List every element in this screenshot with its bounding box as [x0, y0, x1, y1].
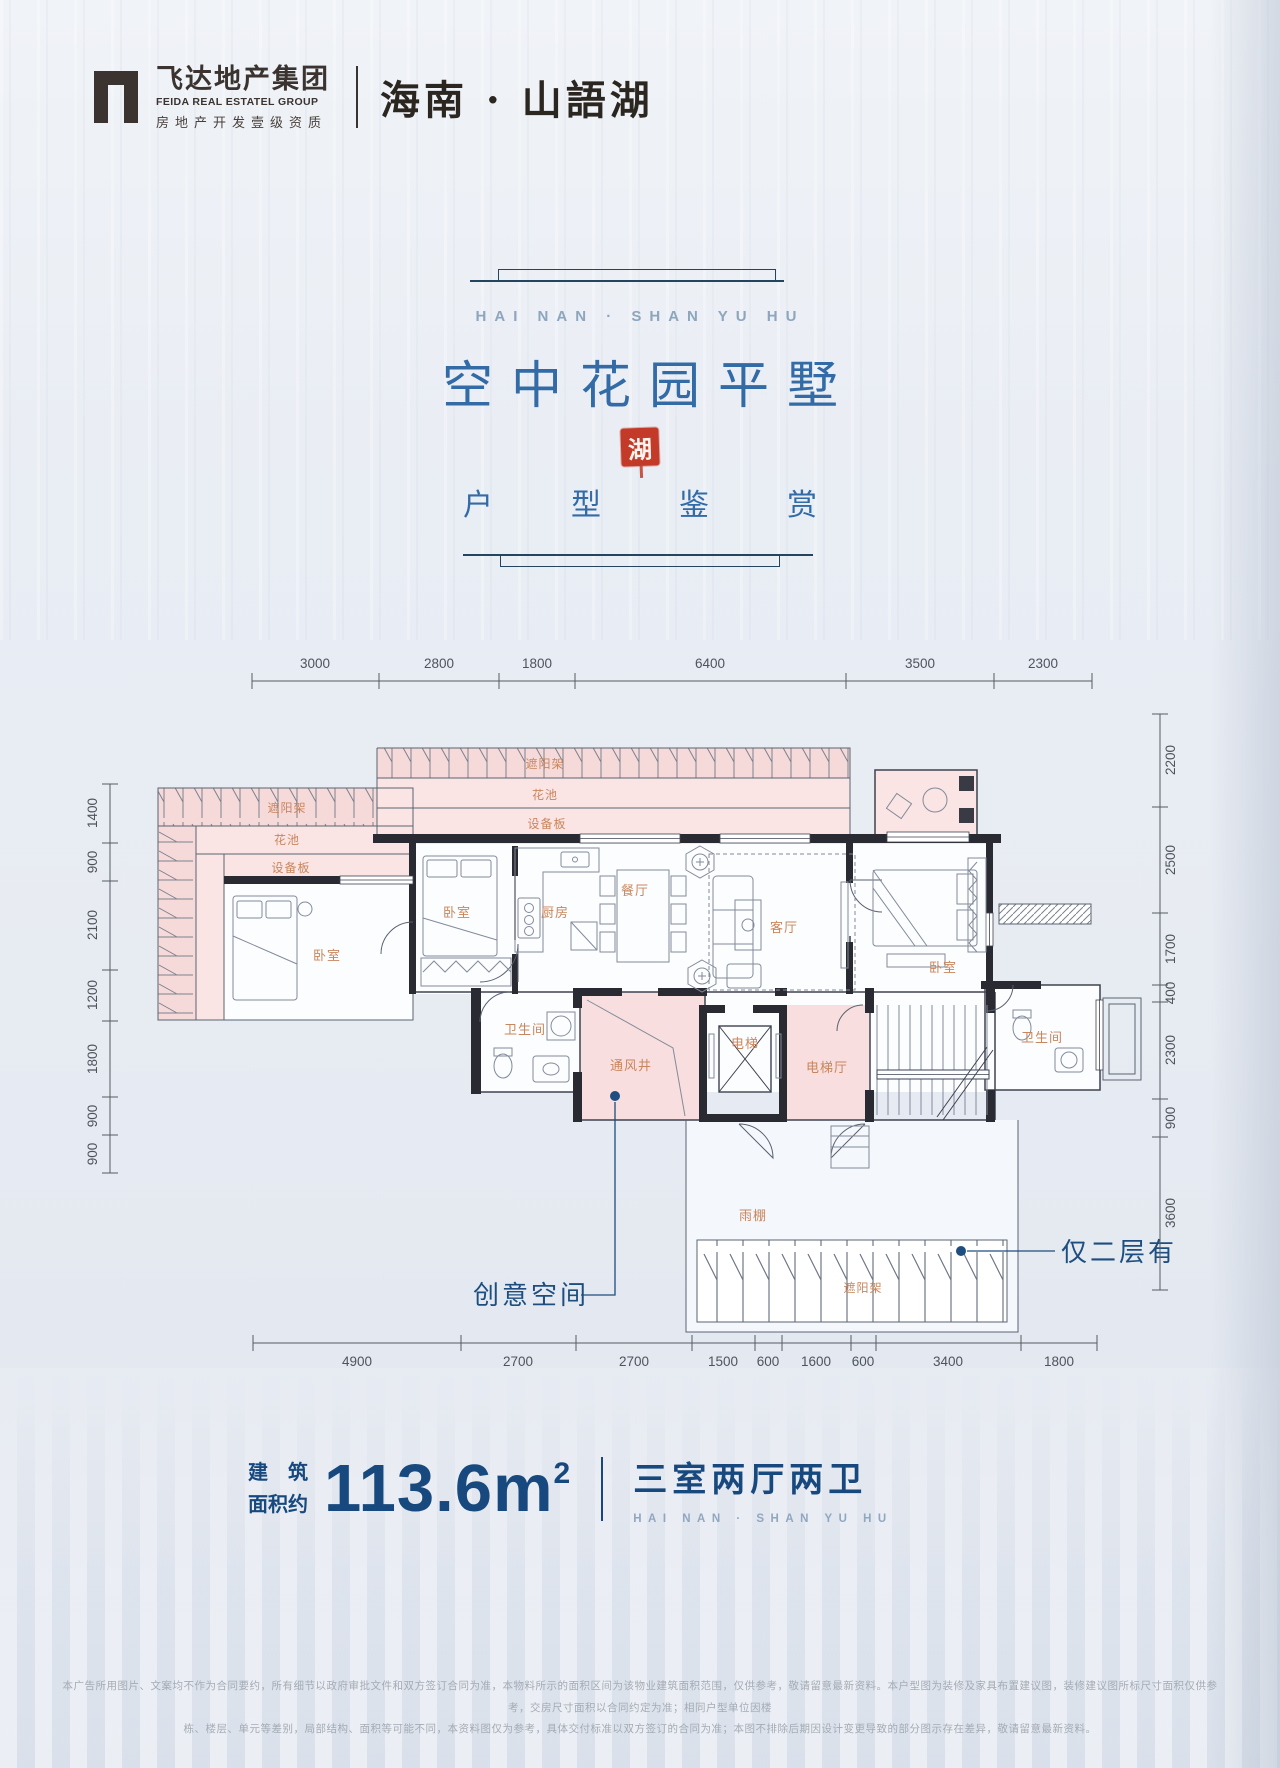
disclaimer-line1: 本广告所用图片、文案均不作为合同要约，所有细节以政府审批文件和双方签订合同为准，… [60, 1676, 1220, 1719]
poster-page: 飞达地产集团 FEIDA REAL ESTATEL GROUP 房地产开发壹级资… [0, 0, 1280, 1768]
dim-right-1: 2500 [1163, 845, 1178, 875]
dim-top-2: 1800 [522, 656, 552, 671]
dim-right-2: 1700 [1163, 934, 1178, 964]
project-name: 海南 · 山語湖 [380, 68, 654, 126]
dim-bottom-7: 3400 [933, 1354, 963, 1369]
room-label-equip-main: 设备板 [527, 817, 566, 831]
room-label-dining: 餐厅 [621, 883, 649, 898]
dim-left-3: 1200 [85, 980, 100, 1010]
dim-bottom-0: 4900 [342, 1354, 372, 1369]
subtitle: 户型鉴赏 [0, 480, 1280, 524]
dim-bottom-5: 1600 [801, 1354, 831, 1369]
layout-block: 三室两厅两卫 HAI NAN · SHAN YU HU [633, 1452, 893, 1525]
dim-bottom-3: 1500 [708, 1354, 738, 1369]
dim-bottom-6: 600 [852, 1354, 875, 1369]
dim-top-4: 3500 [905, 656, 935, 671]
dim-left-4: 1800 [85, 1044, 100, 1074]
floor-plan-svg: 遮阳架 花池 设备板 遮阳架 花池 设备板 卧室 卧室 厨房 餐厅 客厅 卧室 … [75, 620, 1205, 1420]
logo-text: 飞达地产集团 FEIDA REAL ESTATEL GROUP 房地产开发壹级资… [156, 66, 330, 129]
dim-left-2: 2100 [85, 910, 100, 940]
layout-text: 三室两厅两卫 [633, 1452, 893, 1501]
dim-left-6: 900 [85, 1143, 100, 1166]
header-divider [356, 66, 358, 128]
dim-right-3: 400 [1163, 982, 1178, 1005]
dim-bottom-1: 2700 [503, 1354, 533, 1369]
logo-qualification: 房地产开发壹级资质 [156, 116, 330, 129]
area-label-line1: 建 筑 [248, 1457, 308, 1489]
room-label-bedroom-right: 卧室 [929, 960, 957, 975]
dim-right-6: 3600 [1163, 1198, 1178, 1228]
dim-left-0: 1400 [85, 798, 100, 828]
decor-line-bottom [463, 554, 813, 568]
dim-right-0: 2200 [1163, 745, 1178, 775]
room-label-flower-main: 花池 [532, 787, 558, 802]
dim-bottom-2: 2700 [619, 1354, 649, 1369]
background-right-shade [1210, 0, 1280, 1768]
room-label-flower-garden: 花池 [274, 832, 300, 847]
footer-info: 建 筑 面积约 113.6m2 三室两厅两卫 HAI NAN · SHAN YU… [248, 1452, 893, 1525]
dim-bottom-4: 600 [757, 1354, 780, 1369]
dim-right-4: 2300 [1163, 1035, 1178, 1065]
room-label-elevator-hall: 电梯厅 [806, 1060, 848, 1075]
room-label-bedroom-garden: 卧室 [313, 948, 341, 963]
room-label-shade-garden: 遮阳架 [267, 800, 306, 815]
dim-left-1: 900 [85, 851, 100, 874]
header: 飞达地产集团 FEIDA REAL ESTATEL GROUP 房地产开发壹级资… [88, 66, 654, 129]
room-label-bedroom-mid: 卧室 [443, 905, 471, 920]
dim-bottom-8: 1800 [1044, 1354, 1074, 1369]
room-label-shade-main: 遮阳架 [525, 756, 564, 771]
room-label-vent: 通风井 [610, 1058, 652, 1073]
lake-seal: 湖 [620, 427, 659, 466]
feida-logo-icon [88, 67, 144, 127]
area-number: 113.6m [324, 1451, 554, 1526]
dim-top-0: 3000 [300, 656, 330, 671]
dim-top-3: 6400 [695, 656, 725, 671]
room-label-equip-garden: 设备板 [271, 861, 310, 875]
area-value: 113.6m2 [324, 1455, 571, 1522]
dim-top-1: 2800 [424, 656, 454, 671]
room-label-living: 客厅 [770, 920, 798, 935]
disclaimer: 本广告所用图片、文案均不作为合同要约，所有细节以政府审批文件和双方签订合同为准，… [60, 1676, 1220, 1741]
room-label-bath-left: 卫生间 [504, 1022, 546, 1037]
dim-right-5: 900 [1163, 1107, 1178, 1130]
dim-top-5: 2300 [1028, 656, 1058, 671]
title-en-line: HAI NAN · SHAN YU HU [0, 308, 1280, 325]
footer-divider [601, 1457, 603, 1521]
room-label-bath-right: 卫生间 [1021, 1030, 1063, 1045]
room-label-elevator: 电梯 [731, 1036, 759, 1051]
dim-left-5: 900 [85, 1105, 100, 1128]
logo-name-en: FEIDA REAL ESTATEL GROUP [156, 97, 330, 108]
page-title: 空中花园平墅 [0, 344, 1280, 418]
room-label-kitchen: 厨房 [541, 905, 569, 920]
room-label-canopy: 雨棚 [739, 1208, 767, 1223]
room-label-shade-bottom: 遮阳架 [843, 1280, 882, 1295]
area-label: 建 筑 面积约 [248, 1457, 308, 1521]
seal-character: 湖 [627, 429, 652, 465]
disclaimer-line2: 栋、楼层、单元等差别，局部结构、面积等可能不同，本资料图仅为参考，具体交付标准以… [60, 1719, 1220, 1741]
logo-name-cn: 飞达地产集团 [156, 66, 330, 93]
annotation-creative-space: 创意空间 [473, 1280, 589, 1310]
area-label-line2: 面积约 [248, 1489, 308, 1521]
decor-line-top [470, 269, 784, 283]
area-superscript: 2 [554, 1457, 572, 1490]
layout-subtext: HAI NAN · SHAN YU HU [633, 1513, 893, 1525]
